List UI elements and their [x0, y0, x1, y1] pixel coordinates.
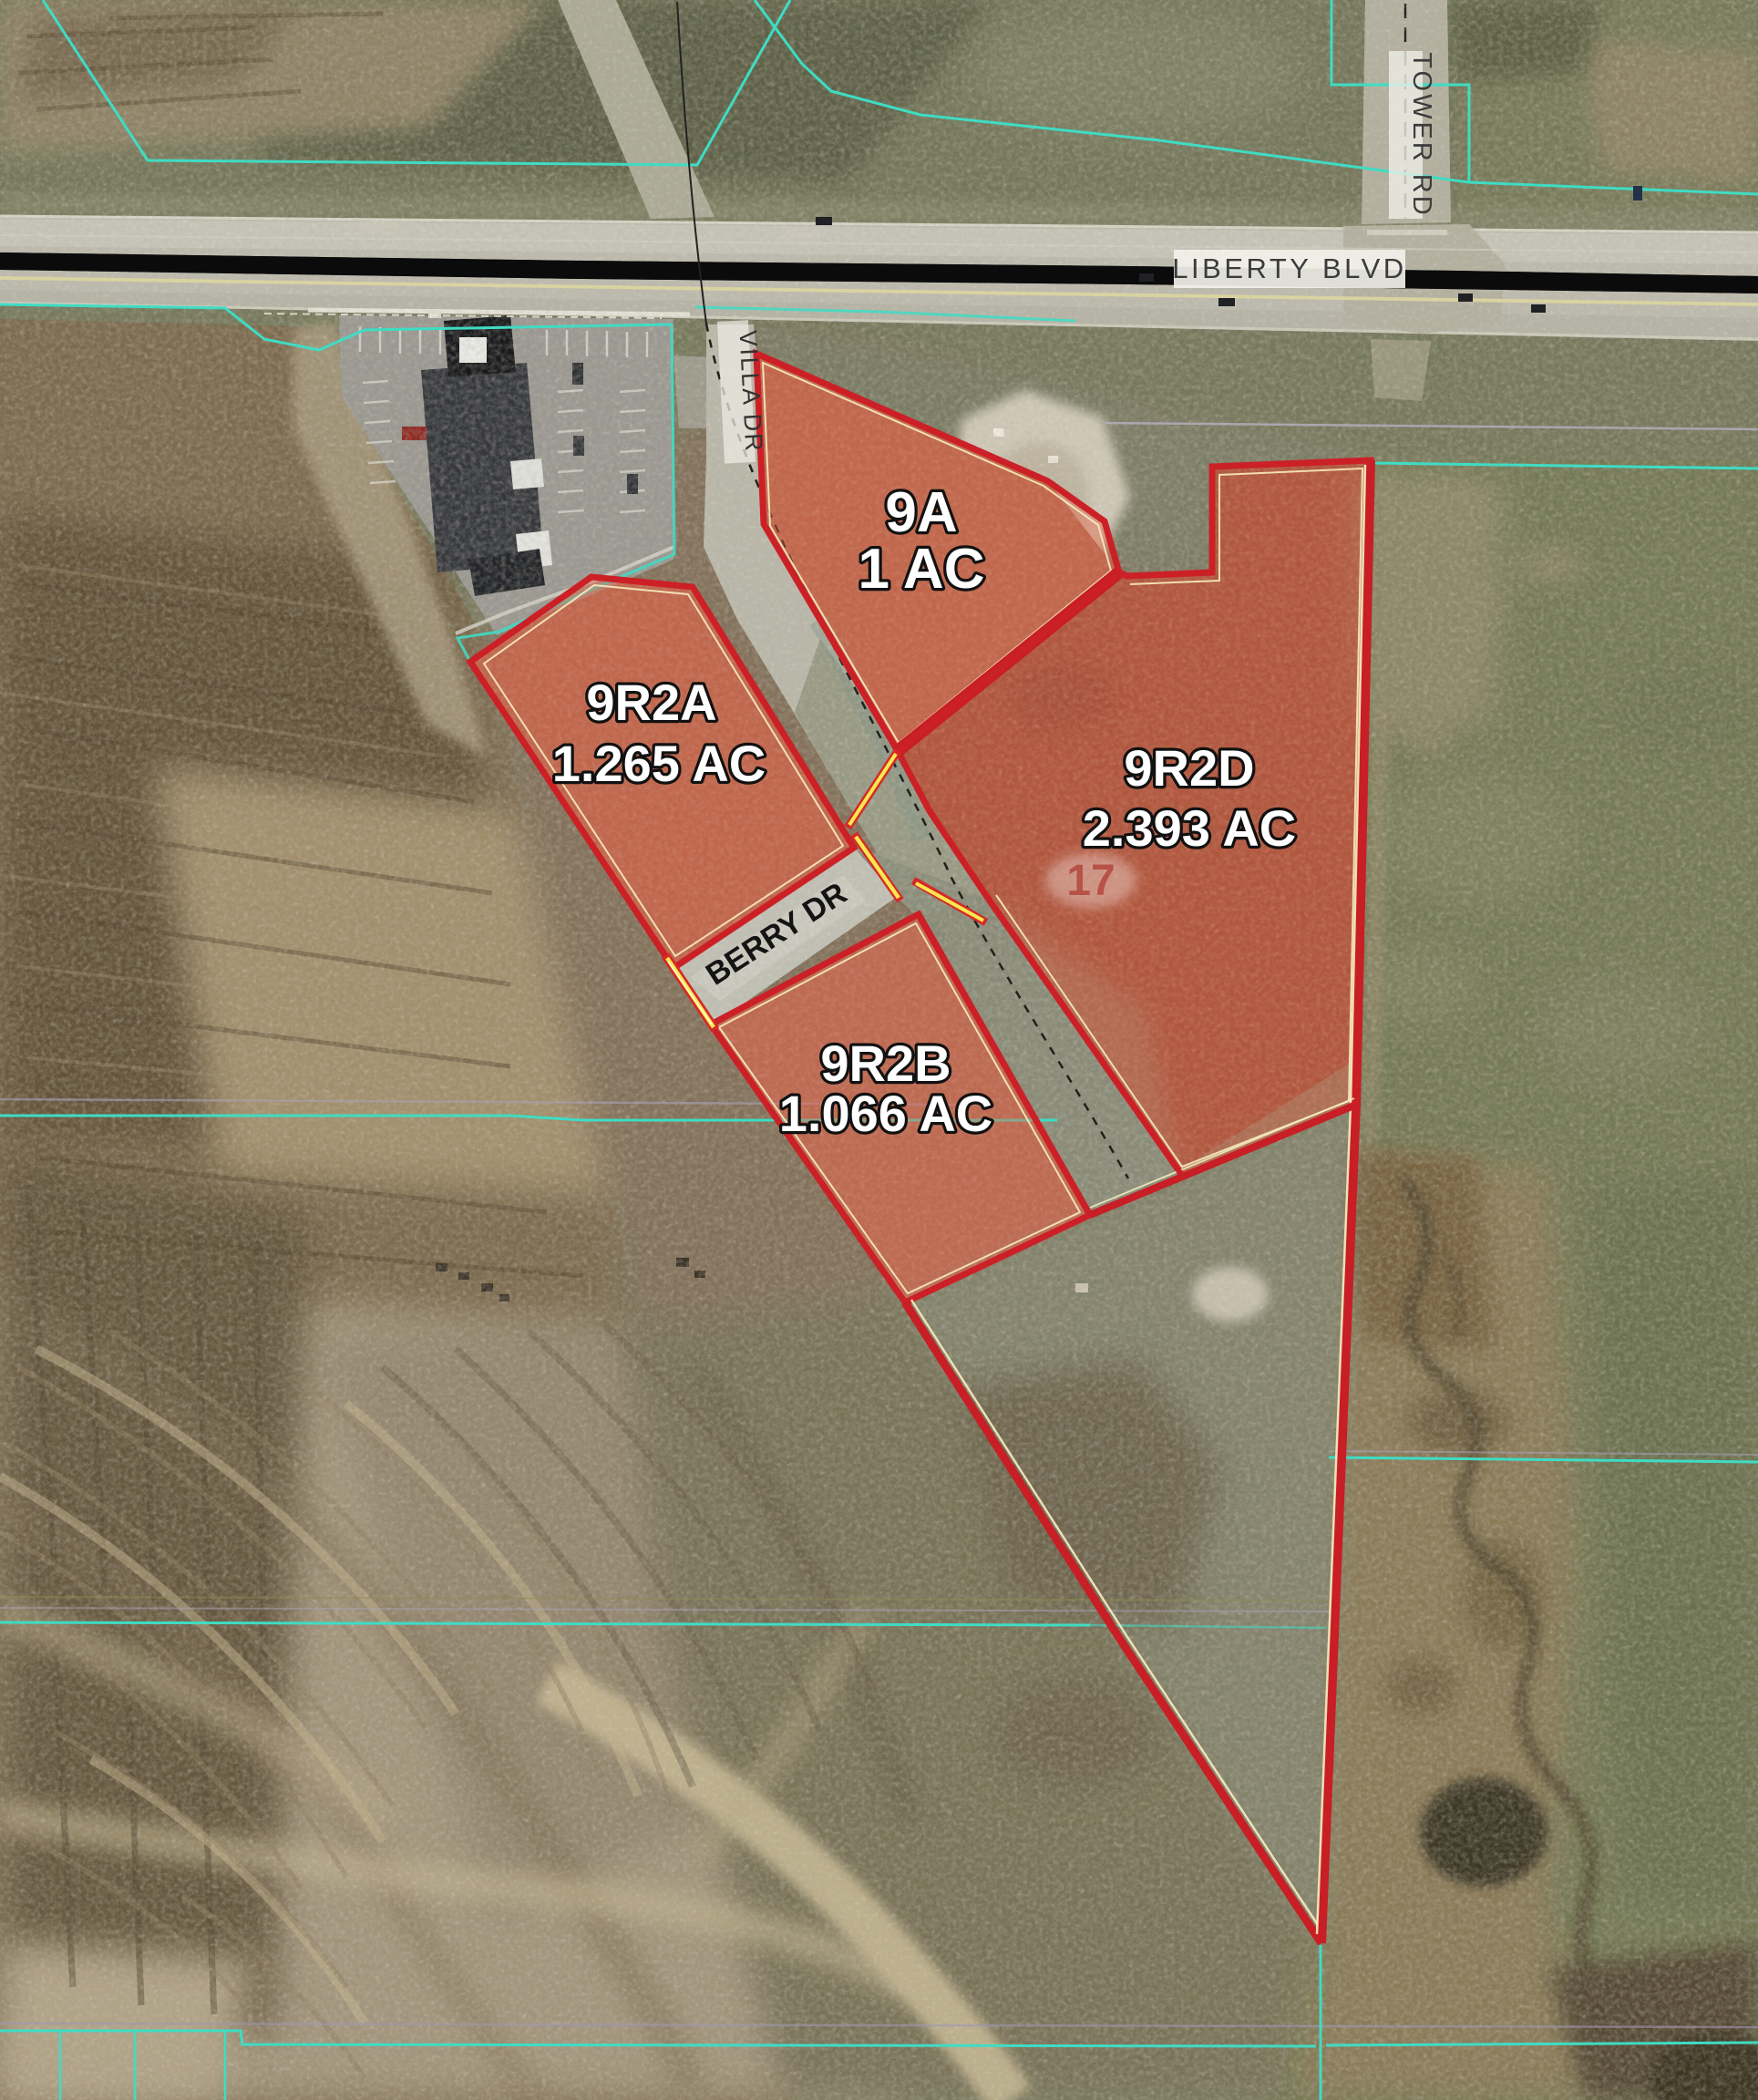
- svg-text:9R2B: 9R2B: [820, 1035, 951, 1092]
- svg-text:2.393 AC: 2.393 AC: [1083, 799, 1297, 857]
- svg-text:9A: 9A: [885, 481, 957, 544]
- svg-text:1.265 AC: 1.265 AC: [552, 735, 766, 792]
- svg-text:17: 17: [1066, 857, 1115, 905]
- svg-text:1 AC: 1 AC: [858, 538, 985, 601]
- svg-text:LIBERTY BLVD: LIBERTY BLVD: [1172, 252, 1406, 284]
- svg-text:9R2A: 9R2A: [586, 674, 716, 731]
- svg-text:1.066 AC: 1.066 AC: [779, 1085, 993, 1142]
- svg-text:9R2D: 9R2D: [1124, 739, 1254, 797]
- svg-text:TOWER RD: TOWER RD: [1407, 52, 1436, 217]
